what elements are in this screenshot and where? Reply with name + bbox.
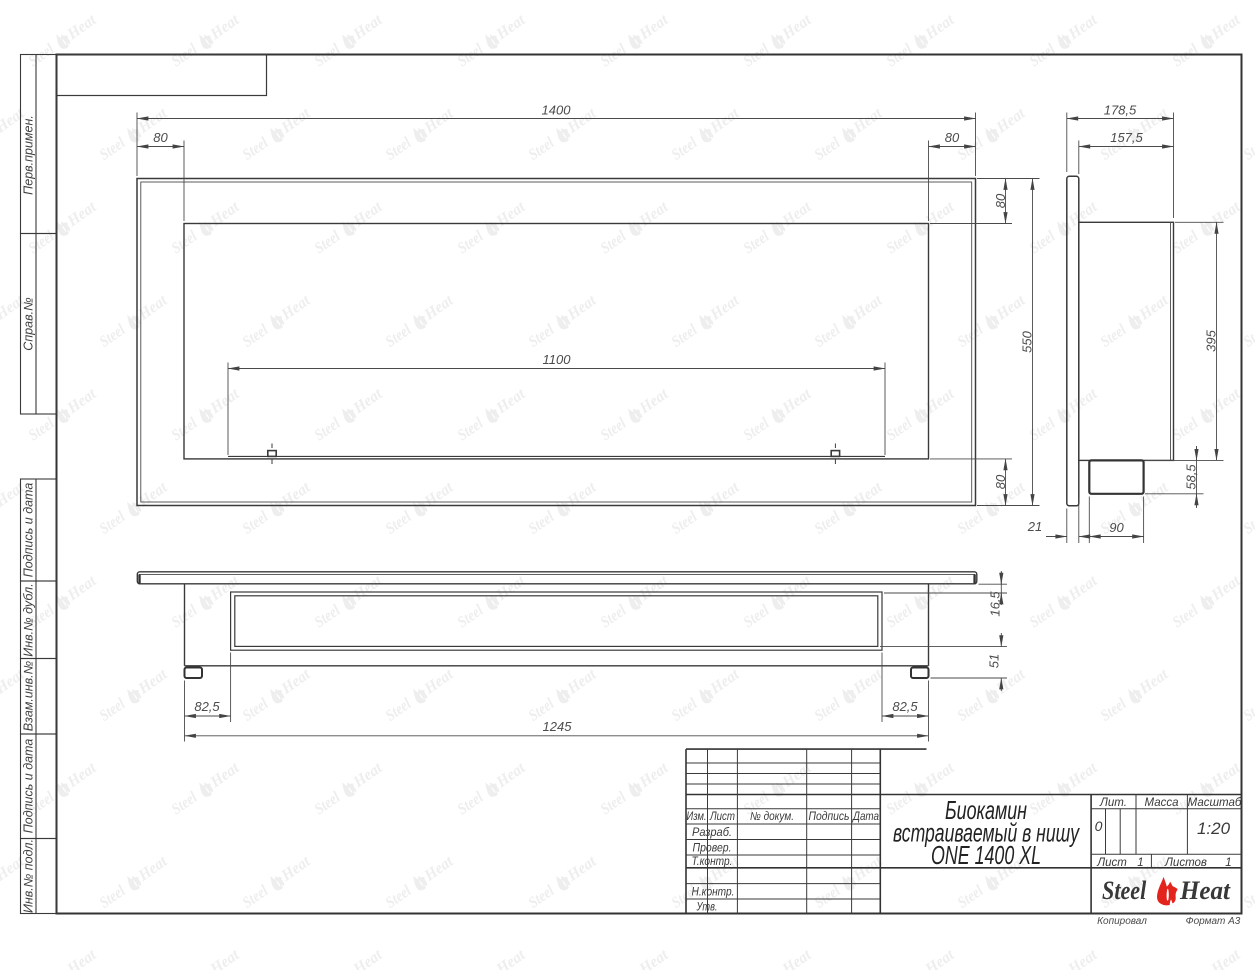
svg-text:Справ.№: Справ.№ bbox=[22, 297, 36, 351]
svg-text:1400: 1400 bbox=[542, 103, 572, 118]
svg-text:Н.контр.: Н.контр. bbox=[692, 887, 735, 899]
svg-text:Подпись и дата: Подпись и дата bbox=[22, 739, 36, 834]
svg-text:Утв.: Утв. bbox=[696, 902, 718, 914]
svg-text:№ докум.: № докум. bbox=[750, 811, 794, 823]
svg-text:Лист: Лист bbox=[709, 811, 735, 823]
svg-text:178,5: 178,5 bbox=[1104, 103, 1137, 118]
svg-text:Разраб.: Разраб. bbox=[692, 827, 732, 839]
svg-text:Инв.№ подл.: Инв.№ подл. bbox=[22, 839, 36, 913]
svg-text:Листов: Листов bbox=[1164, 857, 1207, 869]
svg-text:157,5: 157,5 bbox=[1110, 130, 1143, 145]
svg-text:Лист: Лист bbox=[1096, 857, 1127, 869]
svg-text:82,5: 82,5 bbox=[194, 699, 220, 714]
svg-text:Подпись и дата: Подпись и дата bbox=[22, 483, 36, 578]
svg-text:0: 0 bbox=[1095, 818, 1103, 834]
svg-text:1100: 1100 bbox=[543, 352, 572, 367]
svg-text:Масса: Масса bbox=[1144, 797, 1178, 809]
svg-text:Перв.примен.: Перв.примен. bbox=[22, 115, 36, 195]
svg-text:550: 550 bbox=[1020, 330, 1035, 352]
svg-text:Т.контр.: Т.контр. bbox=[692, 856, 733, 868]
svg-text:Изм.: Изм. bbox=[687, 811, 707, 823]
svg-text:Инв.№ дубл.: Инв.№ дубл. bbox=[22, 583, 36, 656]
svg-text:1: 1 bbox=[1137, 857, 1143, 869]
svg-text:82,5: 82,5 bbox=[892, 699, 918, 714]
svg-text:Лит.: Лит. bbox=[1099, 797, 1127, 809]
svg-text:16,5: 16,5 bbox=[988, 591, 1003, 617]
svg-text:80: 80 bbox=[945, 130, 960, 145]
svg-text:395: 395 bbox=[1204, 329, 1219, 351]
svg-text:Подпись: Подпись bbox=[809, 811, 850, 823]
svg-text:80: 80 bbox=[153, 130, 168, 145]
svg-text:1: 1 bbox=[1225, 857, 1231, 869]
svg-text:Копировал: Копировал bbox=[1097, 916, 1147, 927]
svg-text:21: 21 bbox=[1027, 519, 1042, 534]
svg-text:80: 80 bbox=[993, 193, 1008, 208]
svg-text:Взам.инв.№: Взам.инв.№ bbox=[22, 660, 36, 731]
svg-text:Дата: Дата bbox=[851, 811, 879, 823]
svg-text:80: 80 bbox=[993, 474, 1008, 489]
svg-text:51: 51 bbox=[987, 654, 1002, 668]
svg-text:ONE 1400 XL: ONE 1400 XL bbox=[931, 840, 1041, 870]
svg-text:Провер.: Провер. bbox=[693, 843, 732, 855]
svg-text:Формат А3: Формат А3 bbox=[1186, 916, 1241, 927]
svg-text:1:20: 1:20 bbox=[1197, 819, 1231, 838]
svg-text:Масштаб: Масштаб bbox=[1188, 797, 1242, 809]
svg-text:1245: 1245 bbox=[543, 719, 573, 734]
svg-text:90: 90 bbox=[1109, 520, 1124, 535]
svg-text:58,5: 58,5 bbox=[1184, 464, 1199, 490]
